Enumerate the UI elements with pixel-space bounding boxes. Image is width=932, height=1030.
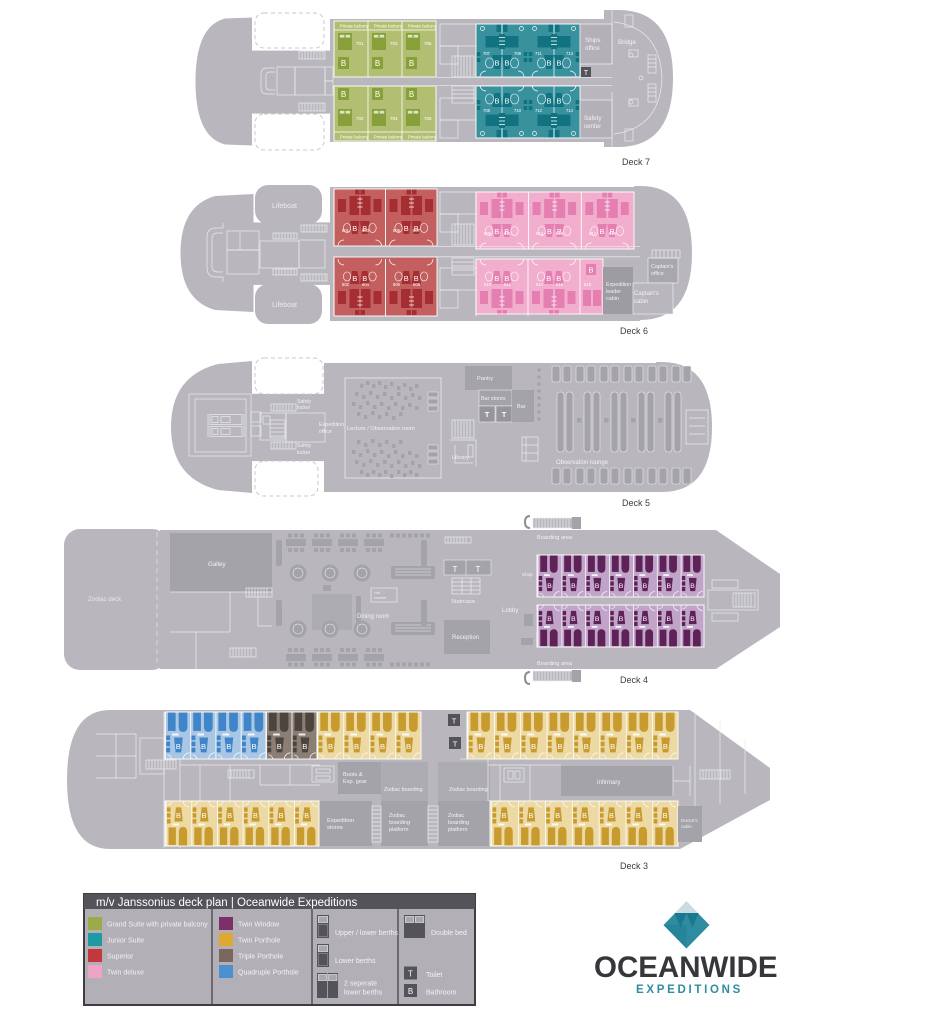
svg-text:stores: stores <box>327 825 343 831</box>
svg-text:Private balcony: Private balcony <box>340 135 370 140</box>
svg-text:Bar stores: Bar stores <box>481 396 506 402</box>
svg-text:Safety: Safety <box>584 115 602 122</box>
svg-text:Triple Porthole: Triple Porthole <box>238 954 283 961</box>
svg-text:Boarding area: Boarding area <box>537 661 573 667</box>
svg-text:614: 614 <box>536 282 544 287</box>
svg-text:606: 606 <box>393 282 401 287</box>
svg-text:B: B <box>341 90 346 99</box>
svg-text:713: 713 <box>566 51 574 56</box>
svg-text:Infirmary: Infirmary <box>597 780 620 786</box>
svg-text:702: 702 <box>356 116 364 121</box>
svg-text:Boots &: Boots & <box>343 772 363 778</box>
svg-text:Boarding area: Boarding area <box>537 535 573 541</box>
svg-text:Double bed: Double bed <box>431 930 467 937</box>
svg-text:Pantry: Pantry <box>477 376 493 382</box>
svg-text:Expedition: Expedition <box>606 282 631 288</box>
svg-text:T: T <box>502 410 507 419</box>
svg-text:Twin Porthole: Twin Porthole <box>238 938 281 945</box>
svg-text:m/v Janssonius deck plan | Oce: m/v Janssonius deck plan | Oceanwide Exp… <box>96 897 357 909</box>
svg-text:Lecture / Observation room: Lecture / Observation room <box>347 426 415 432</box>
svg-text:602: 602 <box>342 282 350 287</box>
svg-text:616: 616 <box>556 282 564 287</box>
svg-text:T: T <box>476 565 481 574</box>
svg-text:counter: counter <box>374 596 387 600</box>
svg-text:office: office <box>319 429 332 435</box>
svg-text:B: B <box>408 987 413 996</box>
svg-text:701: 701 <box>356 41 364 46</box>
svg-text:Safety: Safety <box>297 443 312 449</box>
svg-text:Zodiac boarding: Zodiac boarding <box>384 787 423 793</box>
svg-text:Lifeboat: Lifeboat <box>272 302 297 309</box>
svg-text:cabin: cabin <box>634 299 648 305</box>
svg-text:B: B <box>409 59 414 68</box>
svg-text:Private balcony: Private balcony <box>408 135 438 140</box>
svg-text:Zodiac: Zodiac <box>448 813 464 819</box>
svg-text:B: B <box>409 90 414 99</box>
svg-text:Library: Library <box>452 455 469 461</box>
svg-text:603: 603 <box>362 228 370 233</box>
svg-text:Lobby: Lobby <box>502 608 518 614</box>
svg-text:Bar: Bar <box>517 404 526 410</box>
svg-text:Quadruple Porthole: Quadruple Porthole <box>238 970 299 977</box>
svg-text:Grand Suite with private balco: Grand Suite with private balcony <box>107 922 208 929</box>
svg-text:T: T <box>452 717 457 726</box>
svg-text:Exp. gear: Exp. gear <box>343 779 367 785</box>
svg-text:boarding: boarding <box>448 820 469 826</box>
svg-text:T: T <box>485 410 490 419</box>
svg-text:B: B <box>341 59 346 68</box>
svg-text:601: 601 <box>342 228 350 233</box>
svg-text:Observation lounge: Observation lounge <box>556 460 609 466</box>
svg-text:Upper / lower berths: Upper / lower berths <box>335 930 399 937</box>
svg-text:Ships: Ships <box>585 37 600 44</box>
svg-text:platform: platform <box>389 827 409 833</box>
svg-text:611: 611 <box>504 231 511 236</box>
svg-text:Captain's: Captain's <box>651 264 674 270</box>
svg-text:711: 711 <box>535 51 542 56</box>
svg-text:613: 613 <box>536 231 544 236</box>
svg-text:Junior Suite: Junior Suite <box>107 938 144 945</box>
svg-text:T: T <box>408 970 413 979</box>
svg-text:Lifeboat: Lifeboat <box>272 203 297 210</box>
svg-text:Deck 6: Deck 6 <box>620 326 648 336</box>
svg-text:705: 705 <box>424 41 432 46</box>
svg-text:Zodiac: Zodiac <box>389 813 405 819</box>
svg-text:615: 615 <box>556 231 564 236</box>
svg-text:Private balcony: Private balcony <box>340 24 370 29</box>
svg-text:office: office <box>651 271 664 277</box>
svg-text:Lower berths: Lower berths <box>335 958 376 965</box>
svg-text:Expedition: Expedition <box>319 422 344 428</box>
svg-text:T: T <box>453 740 458 749</box>
svg-text:T: T <box>584 70 589 77</box>
svg-text:609: 609 <box>484 231 492 236</box>
svg-text:platform: platform <box>448 827 468 833</box>
svg-text:708: 708 <box>483 108 491 113</box>
svg-text:leader: leader <box>606 289 621 295</box>
svg-text:cabin: cabin <box>606 296 619 302</box>
svg-text:703: 703 <box>390 41 398 46</box>
svg-text:locker: locker <box>297 450 311 456</box>
svg-text:OCEANWIDE: OCEANWIDE <box>594 951 778 984</box>
svg-text:712: 712 <box>535 108 543 113</box>
svg-text:714: 714 <box>566 108 574 113</box>
svg-text:Deck 7: Deck 7 <box>622 157 650 167</box>
svg-text:Reception: Reception <box>452 635 479 641</box>
svg-text:Galley: Galley <box>208 561 226 568</box>
svg-text:Zodiac boarding: Zodiac boarding <box>449 787 488 793</box>
svg-text:619: 619 <box>609 231 617 236</box>
svg-text:704: 704 <box>390 116 398 121</box>
svg-text:Hot: Hot <box>374 591 381 595</box>
svg-text:707: 707 <box>483 51 491 56</box>
svg-text:center: center <box>584 123 601 130</box>
svg-text:B: B <box>375 59 380 68</box>
svg-text:Shop: Shop <box>522 572 533 577</box>
svg-text:604: 604 <box>362 282 370 287</box>
svg-text:Private balcony: Private balcony <box>374 24 404 29</box>
svg-text:608: 608 <box>413 282 421 287</box>
svg-text:Bathroom: Bathroom <box>426 990 457 997</box>
svg-text:office: office <box>585 45 600 52</box>
svg-text:Doctor's: Doctor's <box>681 818 698 823</box>
svg-text:Deck 5: Deck 5 <box>622 498 650 508</box>
svg-text:Deck 3: Deck 3 <box>620 861 648 871</box>
svg-text:Superior: Superior <box>107 954 134 961</box>
svg-text:612: 612 <box>504 282 512 287</box>
svg-text:Private balcony: Private balcony <box>408 24 438 29</box>
svg-text:Captain's: Captain's <box>634 291 659 297</box>
svg-text:607: 607 <box>413 228 421 233</box>
svg-text:Toilet: Toilet <box>426 972 442 979</box>
svg-text:boarding: boarding <box>389 820 410 826</box>
svg-text:617: 617 <box>589 231 597 236</box>
svg-text:locker: locker <box>297 405 311 411</box>
svg-text:Private balcony: Private balcony <box>374 135 404 140</box>
svg-text:cabin: cabin <box>681 824 692 829</box>
svg-text:Zodiac deck: Zodiac deck <box>88 596 122 603</box>
svg-text:Staircase: Staircase <box>451 599 475 605</box>
svg-text:B: B <box>375 90 380 99</box>
svg-text:710: 710 <box>514 108 522 113</box>
svg-text:706: 706 <box>424 116 432 121</box>
svg-text:lower berths: lower berths <box>344 990 383 997</box>
svg-text:Dining room: Dining room <box>357 614 389 620</box>
svg-text:Deck 4: Deck 4 <box>620 675 648 685</box>
svg-text:Twin Window: Twin Window <box>238 922 280 929</box>
svg-text:T: T <box>453 565 458 574</box>
svg-text:Twin deluxe: Twin deluxe <box>107 970 144 977</box>
svg-text:EXPEDITIONS: EXPEDITIONS <box>636 984 743 996</box>
svg-text:B: B <box>588 266 593 275</box>
svg-text:2 seperate: 2 seperate <box>344 981 377 988</box>
svg-text:709: 709 <box>514 51 522 56</box>
svg-text:618: 618 <box>584 282 592 287</box>
svg-text:Expedition: Expedition <box>327 818 354 824</box>
svg-text:605: 605 <box>393 228 401 233</box>
svg-text:610: 610 <box>484 282 492 287</box>
svg-text:Bridge: Bridge <box>618 39 636 46</box>
